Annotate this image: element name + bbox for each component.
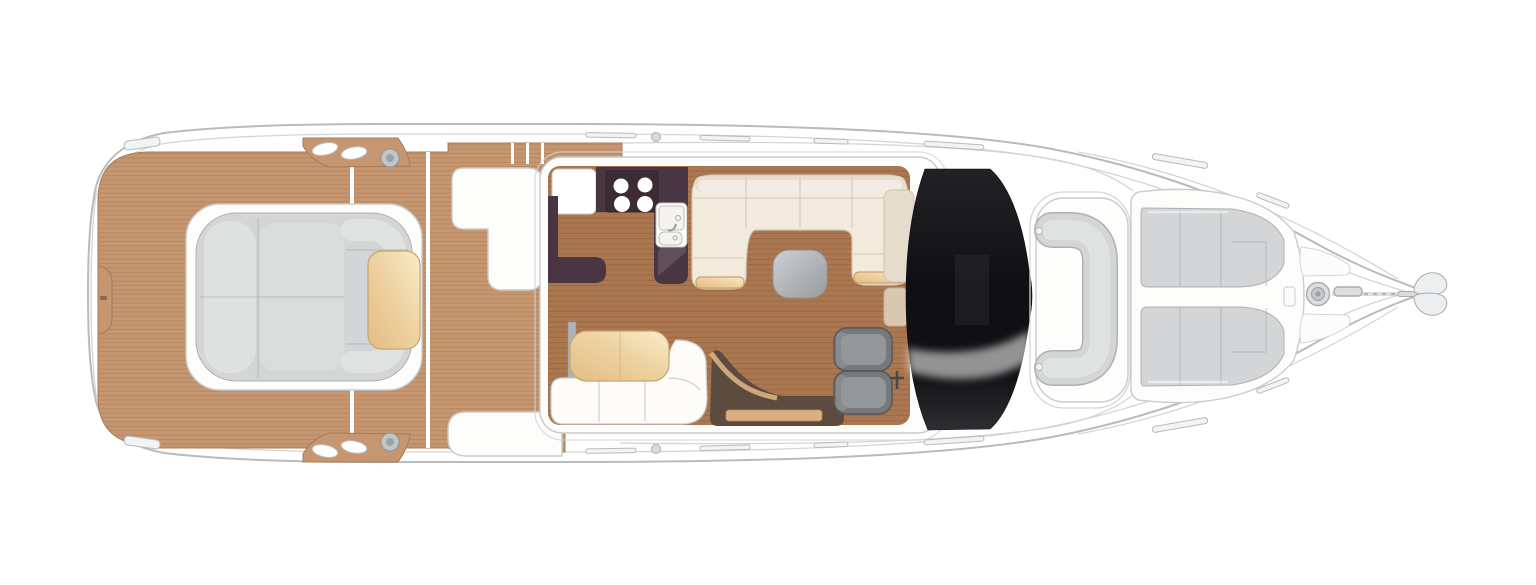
aft-sunpad: [186, 204, 422, 390]
lounge-hinge: [1036, 228, 1043, 235]
dinette: [551, 331, 707, 424]
bow-sunpad-port: [1141, 208, 1284, 287]
helm-seat-forward: [834, 371, 892, 414]
bow-aisle-tab: [1284, 287, 1295, 306]
stair-step: [726, 410, 822, 421]
windscreen: [906, 169, 1032, 430]
winch-cleat-platform-port: [303, 138, 410, 167]
transom-step-handle: [100, 296, 107, 300]
winch-cleat-platform-starboard: [303, 433, 410, 462]
sunpad-tan-pad: [368, 251, 420, 349]
bow-sunpad-starboard: [1141, 307, 1284, 386]
deck-seam: [426, 152, 430, 448]
bow-sunpads: [1131, 189, 1304, 402]
yacht-floorplan-image: [0, 0, 1536, 585]
salon-table: [773, 250, 827, 298]
helm-console: [884, 288, 908, 326]
anchor: [1398, 273, 1447, 316]
rail-knob: [652, 133, 661, 142]
galley-sink: [656, 203, 687, 247]
galley-cabinet: [552, 169, 596, 214]
salon: [535, 152, 947, 440]
helm-seat-aft: [834, 328, 892, 371]
chain-stopper: [1334, 287, 1362, 296]
lounge-hinge: [1036, 364, 1043, 371]
sofa-arm-trim: [696, 277, 744, 288]
foredeck-lounge: [1030, 192, 1130, 408]
ground-tackle: [1300, 247, 1447, 343]
